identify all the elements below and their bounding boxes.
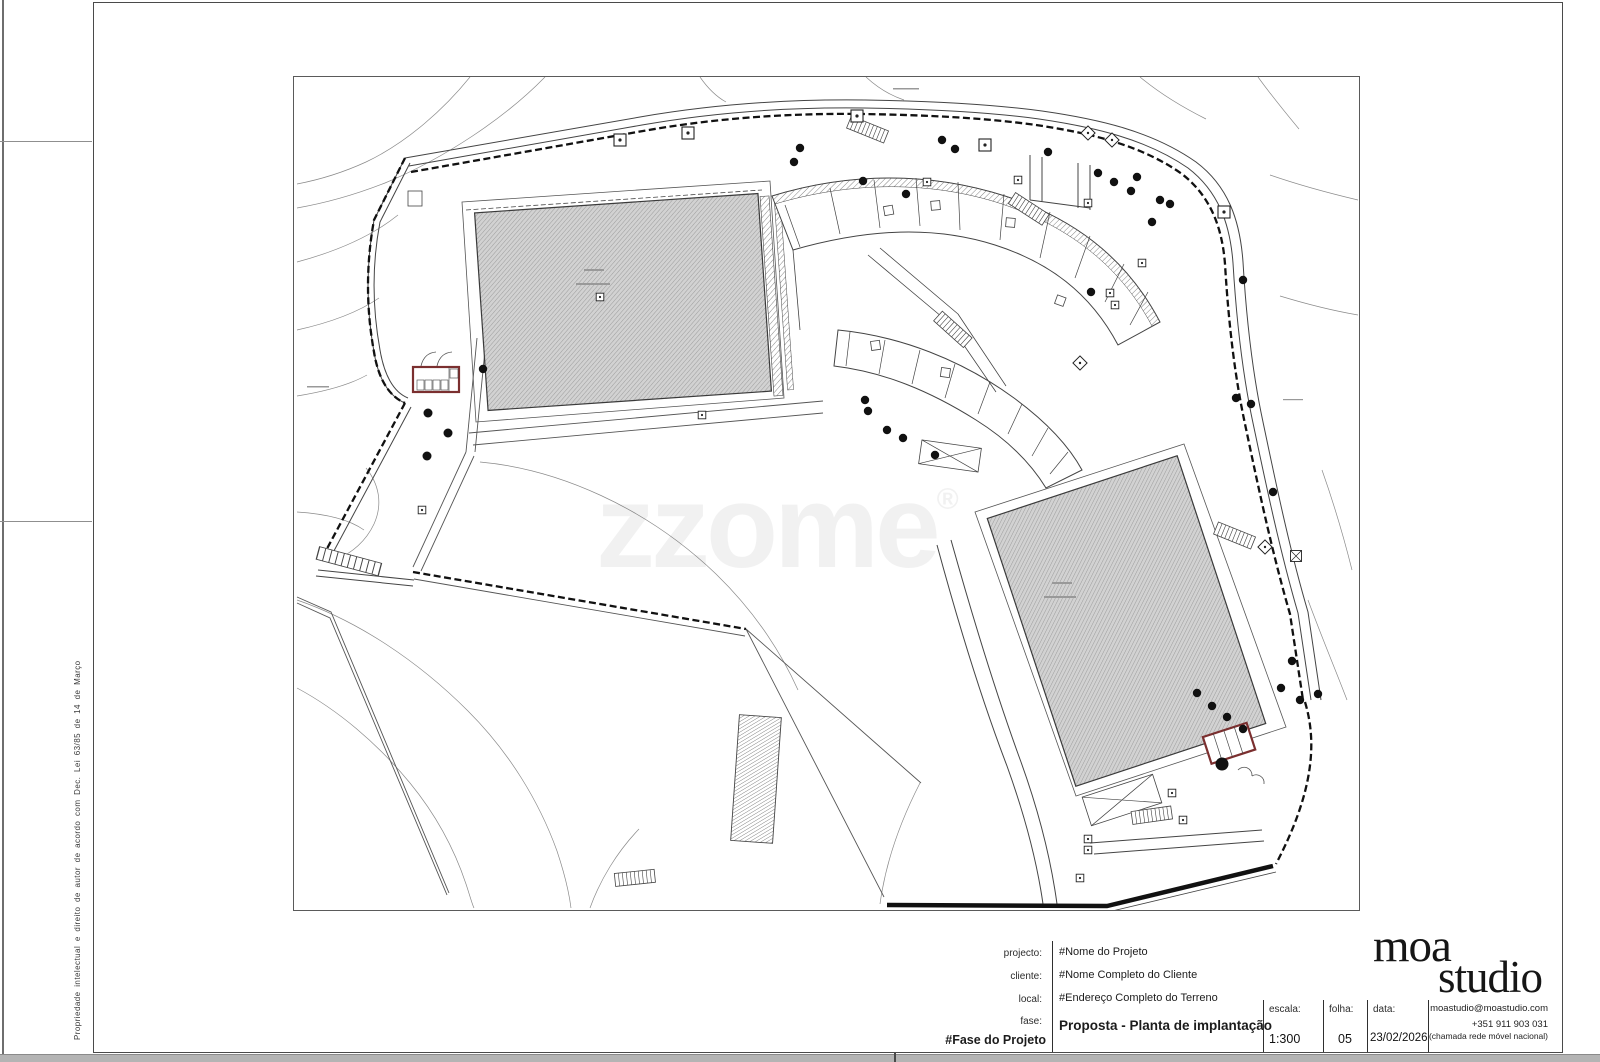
- building-1: [408, 181, 794, 422]
- copyright-notice: Propriedade intelectual e direito de aut…: [73, 710, 88, 1040]
- building-1-footprint: [475, 194, 772, 411]
- fold-mark-bottom-center: [894, 1053, 896, 1062]
- client-value: #Nome Completo do Cliente: [1059, 969, 1197, 981]
- scale-value: 1:300: [1269, 1032, 1300, 1046]
- page-bottom-edge: [0, 1054, 1600, 1062]
- project-label: projecto:: [972, 948, 1042, 959]
- logo-studio: studio: [1438, 955, 1542, 1000]
- titleblock-divider-2: [1263, 1000, 1264, 1052]
- scale-label: escala:: [1269, 1004, 1301, 1015]
- outbuilding-hatched: [731, 715, 782, 844]
- phase-label: fase:: [972, 1016, 1042, 1027]
- field-lines: [297, 338, 921, 897]
- site-plan-frame: [293, 76, 1360, 911]
- contact-phone-note: (chamada rede móvel nacional): [1348, 1031, 1548, 1041]
- fold-mark-bottom: [0, 521, 92, 522]
- project-value: #Nome do Projeto: [1059, 946, 1148, 958]
- left-red-annex: [413, 352, 459, 392]
- page-left-edge: [2, 0, 4, 1062]
- drawing-sheet-page: Propriedade intelectual e direito de aut…: [0, 0, 1600, 1062]
- site-label: local:: [972, 994, 1042, 1005]
- site-plan-drawing: [294, 77, 1359, 910]
- fold-mark-top: [0, 141, 92, 142]
- retaining-wall: [887, 866, 1276, 910]
- drawing-title: Proposta - Planta de implantação: [1059, 1018, 1272, 1033]
- titleblock-divider-1: [1052, 941, 1053, 1052]
- building-2: [975, 444, 1286, 796]
- contact-email: moastudio@moastudio.com: [1348, 1003, 1548, 1014]
- site-value: #Endereço Completo do Terreno: [1059, 992, 1218, 1004]
- phase-value: #Fase do Projeto: [912, 1033, 1046, 1047]
- client-label: cliente:: [972, 971, 1042, 982]
- contact-phone: +351 911 903 031: [1348, 1019, 1548, 1030]
